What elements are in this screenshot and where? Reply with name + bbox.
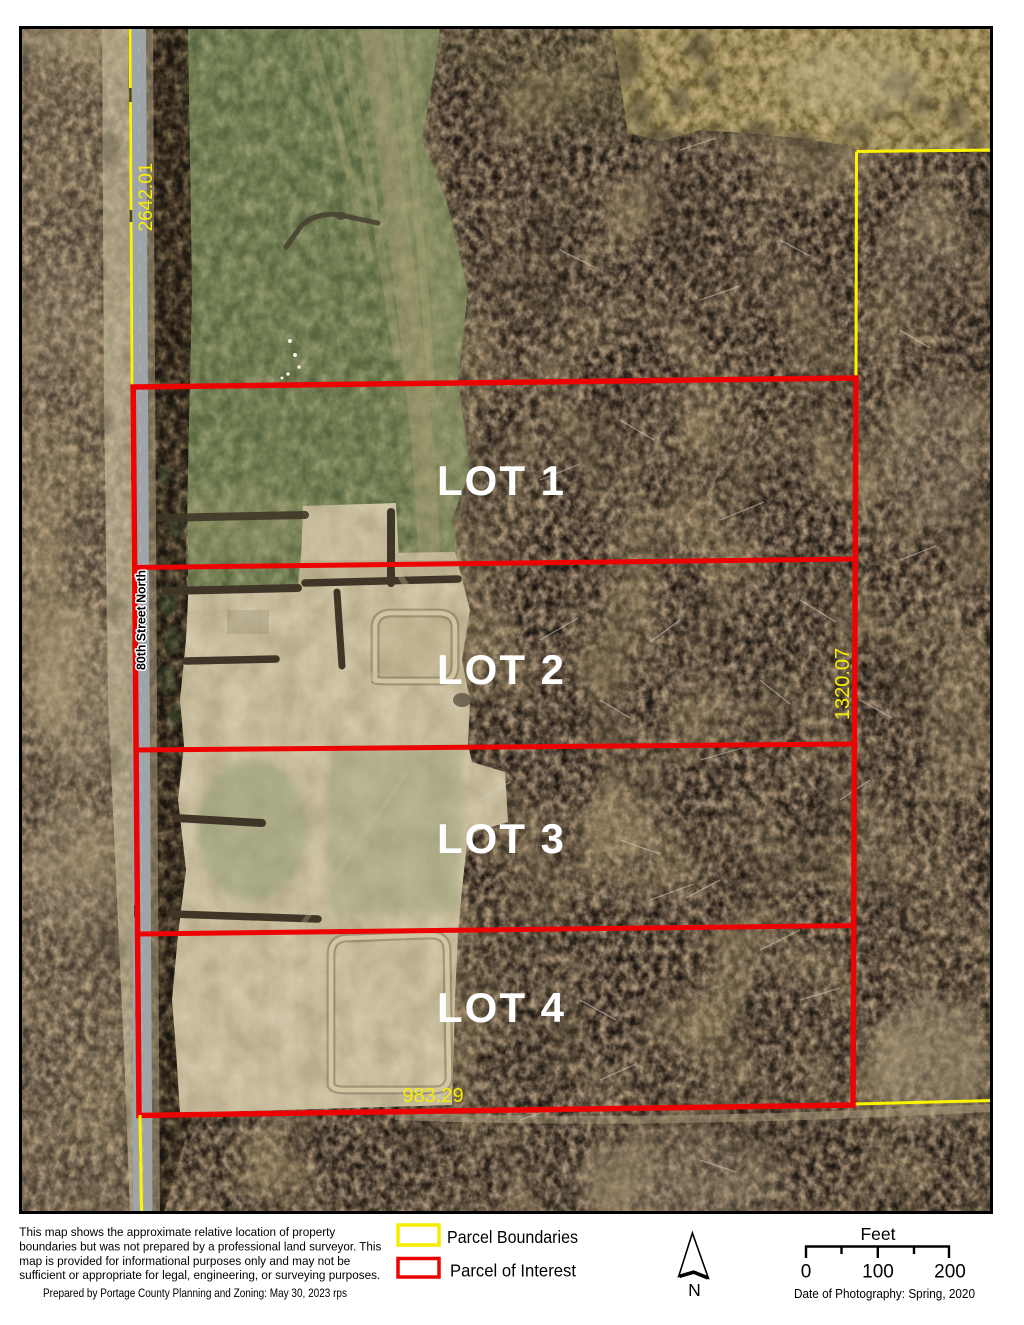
svg-text:Prepared by Portage County Pla: Prepared by Portage County Planning and … — [43, 1286, 347, 1300]
svg-text:LOT 3: LOT 3 — [437, 815, 566, 862]
svg-text:Date of Photography: Spring, 2: Date of Photography: Spring, 2020 — [794, 1286, 975, 1301]
svg-text:80th Street North: 80th Street North — [134, 570, 149, 670]
svg-text:Parcel of Interest: Parcel of Interest — [450, 1260, 576, 1280]
svg-text:100: 100 — [862, 1262, 894, 1283]
svg-text:1320.07: 1320.07 — [832, 648, 854, 720]
svg-text:0: 0 — [801, 1262, 812, 1283]
svg-text:LOT 2: LOT 2 — [437, 646, 566, 693]
svg-text:N: N — [688, 1280, 701, 1300]
svg-text:map is provided for informatio: map is provided for informational purpos… — [19, 1254, 350, 1268]
svg-text:983.29: 983.29 — [402, 1085, 463, 1107]
svg-text:This map shows the approximate: This map shows the approximate relative … — [19, 1225, 336, 1239]
svg-text:LOT 4: LOT 4 — [437, 984, 566, 1031]
svg-text:Feet: Feet — [860, 1224, 895, 1244]
svg-text:200: 200 — [934, 1262, 966, 1283]
svg-text:boundaries but was not prepare: boundaries but was not prepared by a pro… — [19, 1239, 381, 1253]
svg-text:LOT 1: LOT 1 — [437, 457, 566, 504]
svg-text:sufficient or appropriate for: sufficient or appropriate for legal, eng… — [19, 1268, 380, 1282]
svg-text:2642.01: 2642.01 — [136, 163, 157, 232]
svg-text:Parcel Boundaries: Parcel Boundaries — [447, 1227, 578, 1247]
